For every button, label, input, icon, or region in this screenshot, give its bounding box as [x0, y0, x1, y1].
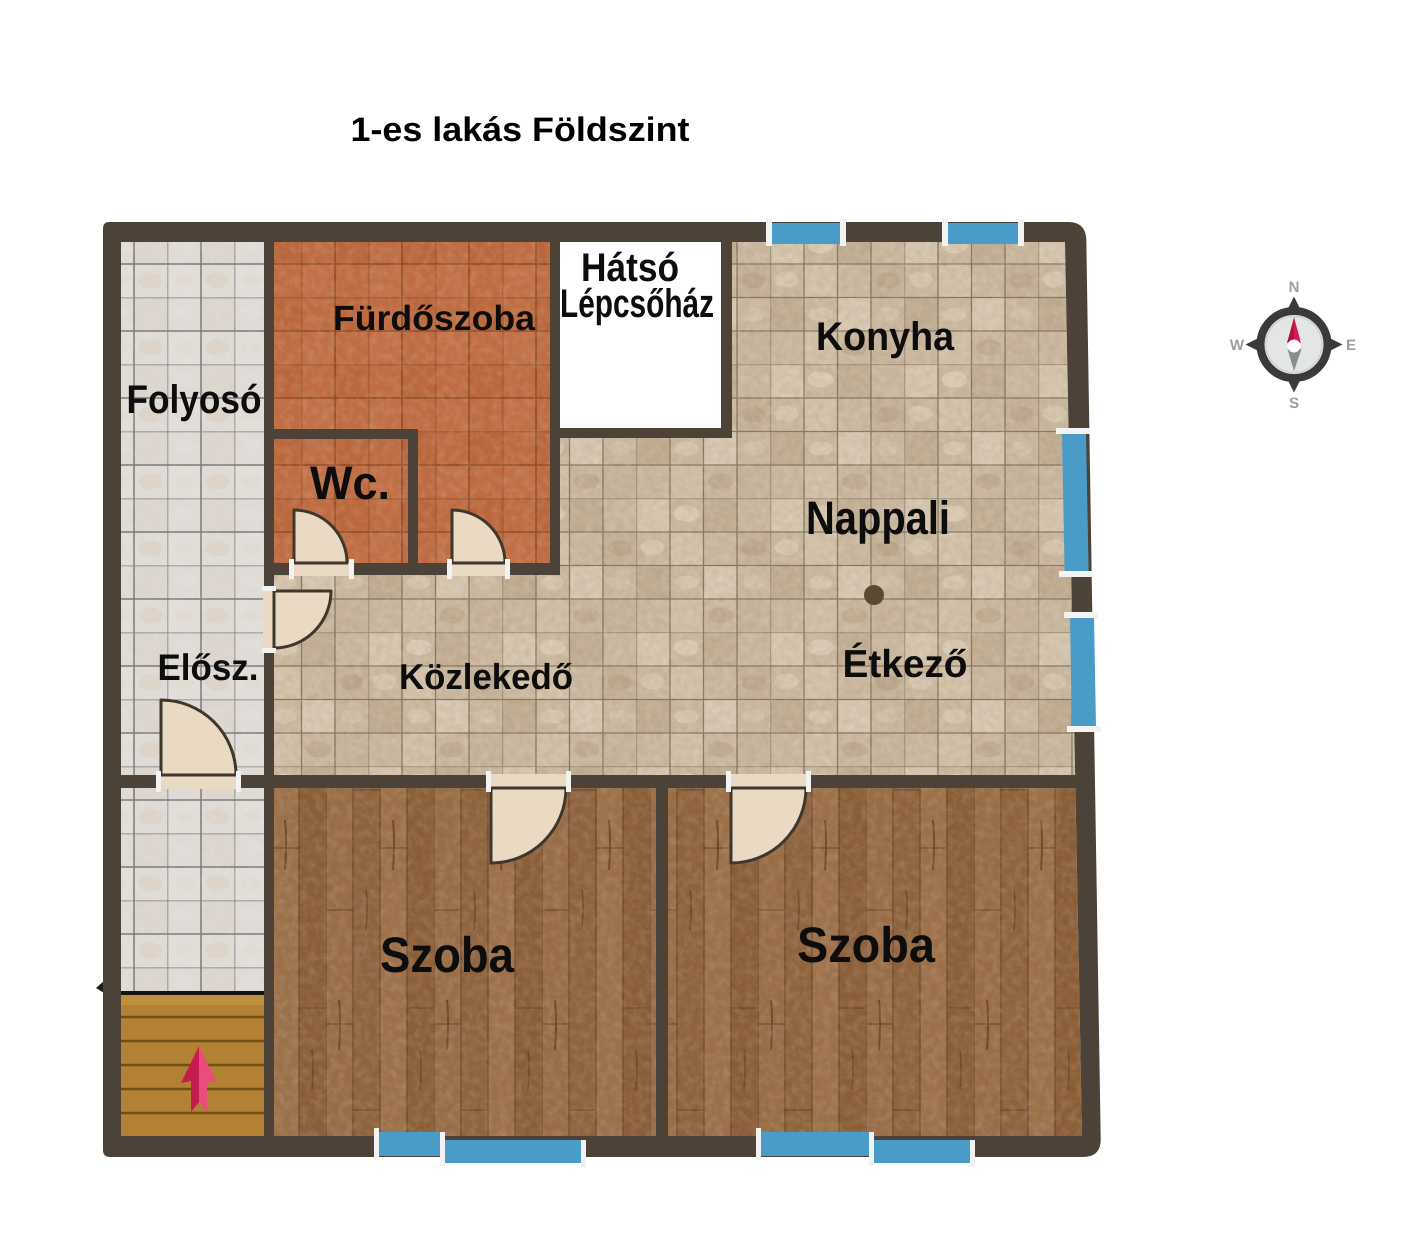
- svg-text:Közlekedő: Közlekedő: [399, 656, 573, 697]
- svg-text:Fürdőszoba: Fürdőszoba: [333, 299, 536, 338]
- svg-text:1-es lakás Földszint: 1-es lakás Földszint: [351, 111, 690, 149]
- svg-text:Nappali: Nappali: [806, 491, 950, 544]
- svg-text:E: E: [1346, 337, 1356, 354]
- svg-text:Elősz.: Elősz.: [158, 647, 259, 688]
- svg-text:Szoba: Szoba: [797, 917, 936, 973]
- svg-text:W: W: [1230, 337, 1245, 354]
- svg-text:Wc.: Wc.: [310, 456, 390, 509]
- svg-text:Lépcsőház: Lépcsőház: [560, 282, 714, 326]
- svg-text:Szoba: Szoba: [380, 927, 515, 983]
- svg-text:S: S: [1289, 395, 1299, 412]
- svg-text:Konyha: Konyha: [816, 315, 955, 359]
- svg-text:N: N: [1289, 279, 1300, 296]
- svg-text:Folyosó: Folyosó: [127, 378, 262, 422]
- svg-text:Étkező: Étkező: [843, 642, 968, 686]
